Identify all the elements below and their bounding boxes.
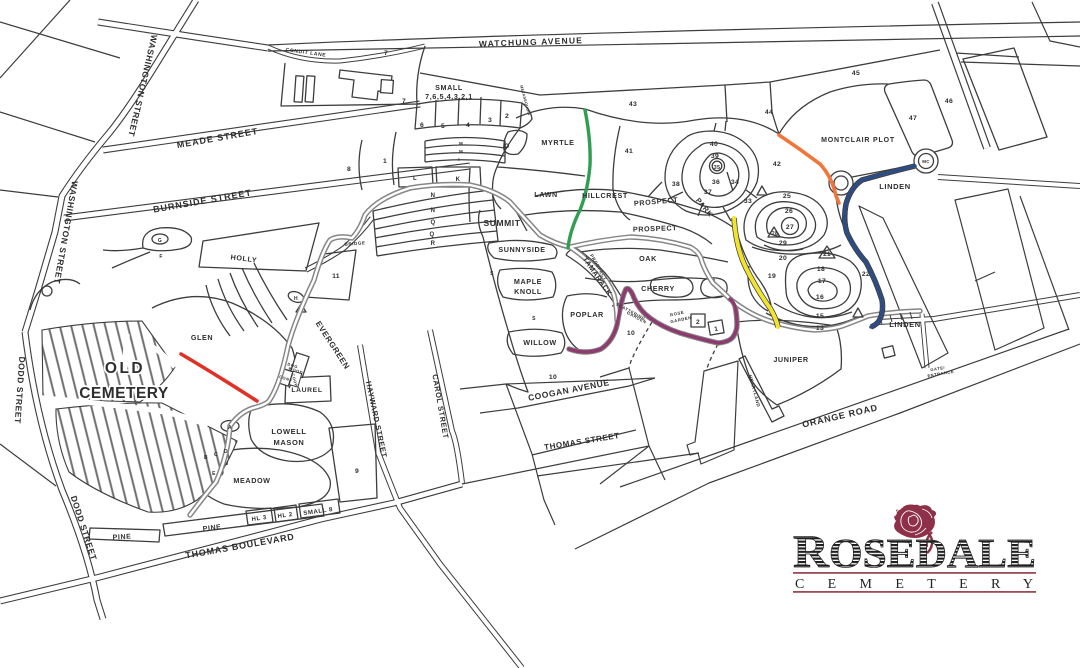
svg-text:POPLAR: POPLAR [570, 310, 604, 319]
svg-text:29: 29 [779, 240, 787, 247]
svg-text:HILLCREST: HILLCREST [582, 191, 628, 200]
svg-text:N: N [431, 193, 436, 199]
svg-text:N: N [431, 208, 436, 214]
svg-text:6: 6 [420, 122, 424, 129]
svg-text:43: 43 [629, 101, 637, 108]
svg-text:CEMETERY: CEMETERY [79, 385, 169, 402]
svg-text:37: 37 [704, 189, 712, 196]
svg-text:MONTCLAIR PLOT: MONTCLAIR PLOT [821, 137, 895, 144]
svg-text:4: 4 [466, 122, 470, 129]
svg-text:SMALL: SMALL [435, 83, 463, 92]
svg-text:JUNIPER: JUNIPER [773, 355, 809, 364]
svg-text:11: 11 [332, 273, 340, 280]
svg-text:Q: Q [431, 220, 436, 226]
svg-text:19: 19 [768, 273, 776, 280]
svg-text:PROSPECT: PROSPECT [633, 223, 678, 234]
svg-text:44: 44 [765, 109, 773, 116]
svg-text:LAWN: LAWN [534, 190, 558, 199]
svg-text:S: S [532, 316, 536, 322]
svg-text:PINE: PINE [113, 534, 132, 542]
svg-text:2: 2 [505, 113, 509, 120]
svg-text:Q: Q [430, 232, 435, 238]
svg-text:H: H [294, 296, 298, 302]
svg-text:41: 41 [625, 148, 633, 155]
svg-text:36: 36 [712, 179, 720, 186]
svg-text:20: 20 [779, 255, 787, 262]
svg-text:16: 16 [816, 294, 824, 301]
svg-text:LINDEN: LINDEN [879, 182, 911, 191]
svg-text:MASON: MASON [274, 438, 305, 447]
svg-text:47: 47 [909, 115, 917, 122]
svg-text:I: I [458, 157, 460, 162]
svg-text:7: 7 [402, 98, 406, 105]
svg-text:LAUREL: LAUREL [291, 387, 322, 394]
svg-text:MAPLE: MAPLE [514, 277, 542, 286]
svg-text:SUMMIT: SUMMIT [483, 218, 520, 228]
svg-text:5: 5 [441, 123, 445, 130]
svg-text:MC: MC [922, 159, 930, 164]
svg-text:27: 27 [786, 224, 794, 231]
svg-text:7: 7 [384, 50, 388, 57]
svg-text:OLD: OLD [105, 360, 145, 377]
svg-text:13: 13 [816, 325, 824, 332]
svg-text:34: 34 [731, 179, 739, 186]
svg-text:46: 46 [945, 98, 953, 105]
svg-text:25: 25 [783, 193, 791, 200]
svg-text:LOWELL: LOWELL [271, 427, 306, 436]
svg-text:45: 45 [852, 70, 860, 77]
svg-text:WILLOW: WILLOW [523, 338, 557, 347]
svg-text:8: 8 [347, 166, 351, 173]
svg-text:MYRTLE: MYRTLE [541, 138, 574, 147]
svg-text:21: 21 [823, 251, 831, 258]
svg-text:1: 1 [383, 158, 387, 165]
svg-text:2: 2 [696, 319, 700, 326]
svg-text:M: M [459, 141, 463, 146]
svg-text:G: G [158, 238, 162, 244]
svg-text:S: S [490, 271, 494, 277]
svg-text:SUNNYSIDE: SUNNYSIDE [498, 245, 545, 254]
svg-text:LINDEN: LINDEN [889, 320, 921, 329]
svg-text:F: F [159, 254, 162, 260]
svg-text:3: 3 [488, 117, 492, 124]
svg-text:39: 39 [711, 153, 719, 160]
svg-text:38: 38 [672, 181, 680, 188]
svg-text:O: O [505, 144, 510, 150]
svg-text:10: 10 [549, 374, 557, 381]
svg-text:40: 40 [710, 141, 718, 148]
svg-text:22: 22 [862, 271, 870, 278]
svg-text:R: R [431, 241, 436, 247]
svg-text:L: L [413, 176, 417, 182]
svg-text:35: 35 [714, 165, 721, 171]
svg-text:17: 17 [818, 278, 826, 285]
svg-text:OAK: OAK [639, 254, 657, 263]
svg-text:18: 18 [817, 266, 825, 273]
svg-text:26: 26 [785, 208, 793, 215]
svg-text:B: B [204, 455, 208, 461]
svg-text:C: C [214, 452, 218, 458]
svg-text:9: 9 [355, 468, 359, 475]
svg-text:K: K [456, 177, 461, 183]
svg-text:D: D [224, 449, 228, 455]
svg-text:7,6,5,4,3,2,1: 7,6,5,4,3,2,1 [425, 92, 473, 101]
svg-text:CHERRY: CHERRY [641, 284, 675, 293]
svg-text:GLEN: GLEN [191, 333, 213, 342]
svg-text:42: 42 [773, 161, 781, 168]
svg-text:M: M [459, 149, 463, 154]
svg-text:15: 15 [816, 313, 824, 320]
svg-text:A: A [228, 425, 232, 431]
svg-text:MEADOW: MEADOW [233, 476, 270, 485]
svg-text:E: E [212, 471, 216, 477]
svg-text:ROSEDALE: ROSEDALE [793, 526, 1036, 578]
svg-text:KNOLL: KNOLL [514, 287, 542, 296]
svg-text:28: 28 [772, 231, 778, 237]
svg-text:10: 10 [627, 330, 635, 337]
svg-text:33: 33 [744, 198, 752, 205]
